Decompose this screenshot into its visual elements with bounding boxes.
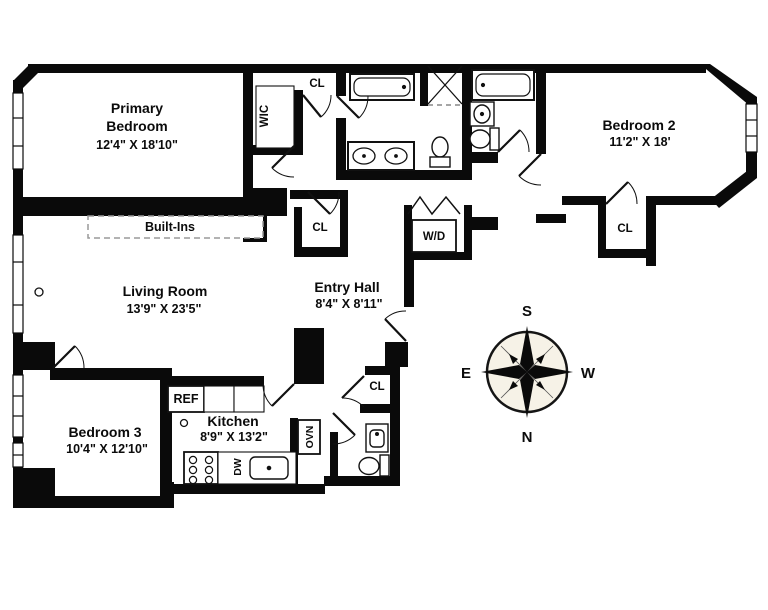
compass-top-label: S — [522, 303, 532, 320]
wall-cl-bedroom2-top — [562, 196, 606, 205]
living-room-column-icon — [35, 288, 43, 296]
wall-cl-hall-bottom — [294, 247, 348, 257]
dw-label: DW — [232, 458, 244, 476]
bathtub-2-icon — [472, 70, 534, 100]
toilet-bath2-icon — [470, 128, 499, 150]
wall-bedroom3-top — [50, 368, 172, 380]
compass-points — [481, 326, 573, 418]
wd-label: W/D — [423, 231, 445, 243]
primary-bedroom-label-2: Bedroom — [106, 118, 167, 134]
compass-rose: S N E W — [461, 303, 596, 446]
window-bedroom2-right — [746, 104, 757, 152]
wall-powder-right — [390, 366, 400, 486]
sink-powder-icon — [366, 424, 388, 452]
wall-primary-bottom — [23, 197, 245, 216]
window-left-1 — [13, 93, 23, 169]
toilet-primary-icon — [430, 137, 450, 167]
toilet-powder-icon — [359, 455, 389, 476]
wall-cl-powder-divider — [360, 404, 400, 413]
kitchen-upper-counter-1 — [204, 386, 234, 412]
door-bath2 — [498, 130, 529, 152]
wall-bath-left — [336, 118, 346, 170]
cl-top-label: CL — [309, 78, 324, 90]
stove-icon — [184, 452, 218, 484]
bedroom2-dims: 11'2" X 18' — [609, 135, 670, 149]
kitchen-column-icon — [181, 420, 188, 427]
wall-bath2-right — [536, 64, 546, 154]
kitchen-dims: 8'9" X 13'2" — [200, 430, 268, 444]
entry-hall-label: Entry Hall — [314, 279, 379, 295]
sink-bath2-icon — [470, 102, 494, 126]
compass-bottom-label: N — [522, 429, 533, 446]
wall-kitchen-top — [162, 376, 264, 386]
wall-living-sw-chunk — [13, 342, 55, 370]
wall-bath-bottom — [336, 170, 467, 180]
built-ins-label: Built-Ins — [145, 220, 195, 234]
door-bedroom3 — [53, 346, 84, 368]
ovn-label: OVN — [304, 426, 316, 449]
door-cl-bedroom2 — [606, 182, 637, 204]
wall-entry-right — [404, 258, 414, 307]
primary-bedroom-label-1: Primary — [111, 100, 163, 116]
door-kitchen — [263, 384, 294, 406]
wall-living-se-chunk — [294, 328, 324, 384]
living-room-dims: 13'9" X 23'5" — [127, 302, 202, 316]
wall-kitchen-bottom — [165, 484, 325, 494]
wall-primary-right — [243, 72, 253, 197]
bathtub-primary-icon — [350, 74, 414, 100]
wall-corridor-stub — [536, 214, 566, 223]
ref-label: REF — [174, 392, 199, 406]
floor-plan: S N E W Primary Bedroom 12'4" X 18'10" B… — [0, 0, 768, 610]
wall-powder-left — [330, 432, 338, 476]
wall-wd-bottom — [404, 252, 472, 260]
window-left-4 — [13, 443, 23, 467]
wall-entry-chunk — [385, 342, 408, 367]
kitchen-upper-counter-2 — [234, 386, 264, 412]
door-entry-front — [385, 311, 406, 341]
kitchen-sink-icon — [218, 452, 296, 484]
living-room-label: Living Room — [123, 283, 208, 299]
wall-tub-shower-divider — [420, 64, 428, 106]
bedroom3-dims: 10'4" X 12'10" — [66, 442, 148, 456]
cl-bedroom2-label: CL — [617, 223, 632, 235]
wic-label: WIC — [259, 105, 271, 127]
wall-powder-bottom — [324, 476, 400, 486]
wall-cl-top-right — [336, 64, 346, 96]
cl-hall-label: CL — [312, 222, 327, 234]
primary-bedroom-dims: 12'4" X 18'10" — [96, 138, 178, 152]
door-cl-entry — [342, 376, 364, 407]
wall-corridor-south — [472, 217, 498, 230]
wall-cl-entry-top — [365, 366, 400, 375]
wall-cl-hall-right — [340, 190, 348, 255]
wall-vestibule-chunk-a — [243, 188, 287, 216]
cl-entry-label: CL — [369, 381, 384, 393]
window-left-2 — [13, 235, 23, 333]
wall-bedroom3-bottom — [13, 496, 171, 508]
window-left-3 — [13, 375, 23, 437]
door-cl-top — [303, 95, 331, 117]
wall-bath2-bottom — [462, 152, 498, 163]
compass-left-label: E — [461, 365, 471, 382]
bedroom3-label: Bedroom 3 — [68, 424, 141, 440]
bedroom2-label: Bedroom 2 — [602, 117, 675, 133]
wall-bedroom2-bottom — [646, 196, 722, 205]
entry-hall-dims: 8'4" X 8'11" — [315, 297, 382, 311]
door-bedroom2 — [519, 154, 541, 185]
vanity-double-sink-icon — [348, 142, 414, 170]
door-wd-bifold — [408, 197, 460, 214]
compass-right-label: W — [581, 365, 596, 382]
wall-wd-right — [464, 205, 472, 260]
wall-top — [28, 64, 706, 73]
wall-cl-bedroom2-bottom — [598, 249, 656, 258]
kitchen-label: Kitchen — [207, 413, 258, 429]
floor-plan-canvas: S N E W Primary Bedroom 12'4" X 18'10" B… — [0, 0, 768, 610]
